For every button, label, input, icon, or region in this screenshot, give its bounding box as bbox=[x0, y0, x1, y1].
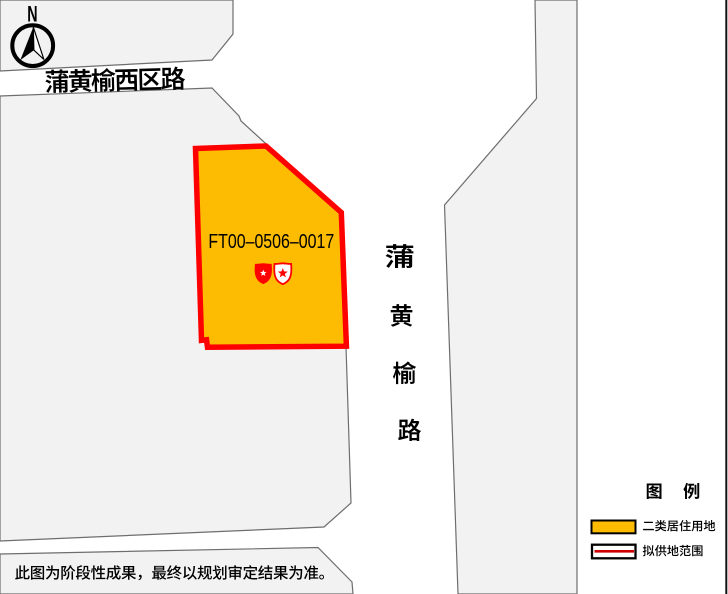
svg-text:FT00–0506–0017: FT00–0506–0017 bbox=[208, 230, 334, 253]
svg-text:N: N bbox=[27, 2, 37, 27]
